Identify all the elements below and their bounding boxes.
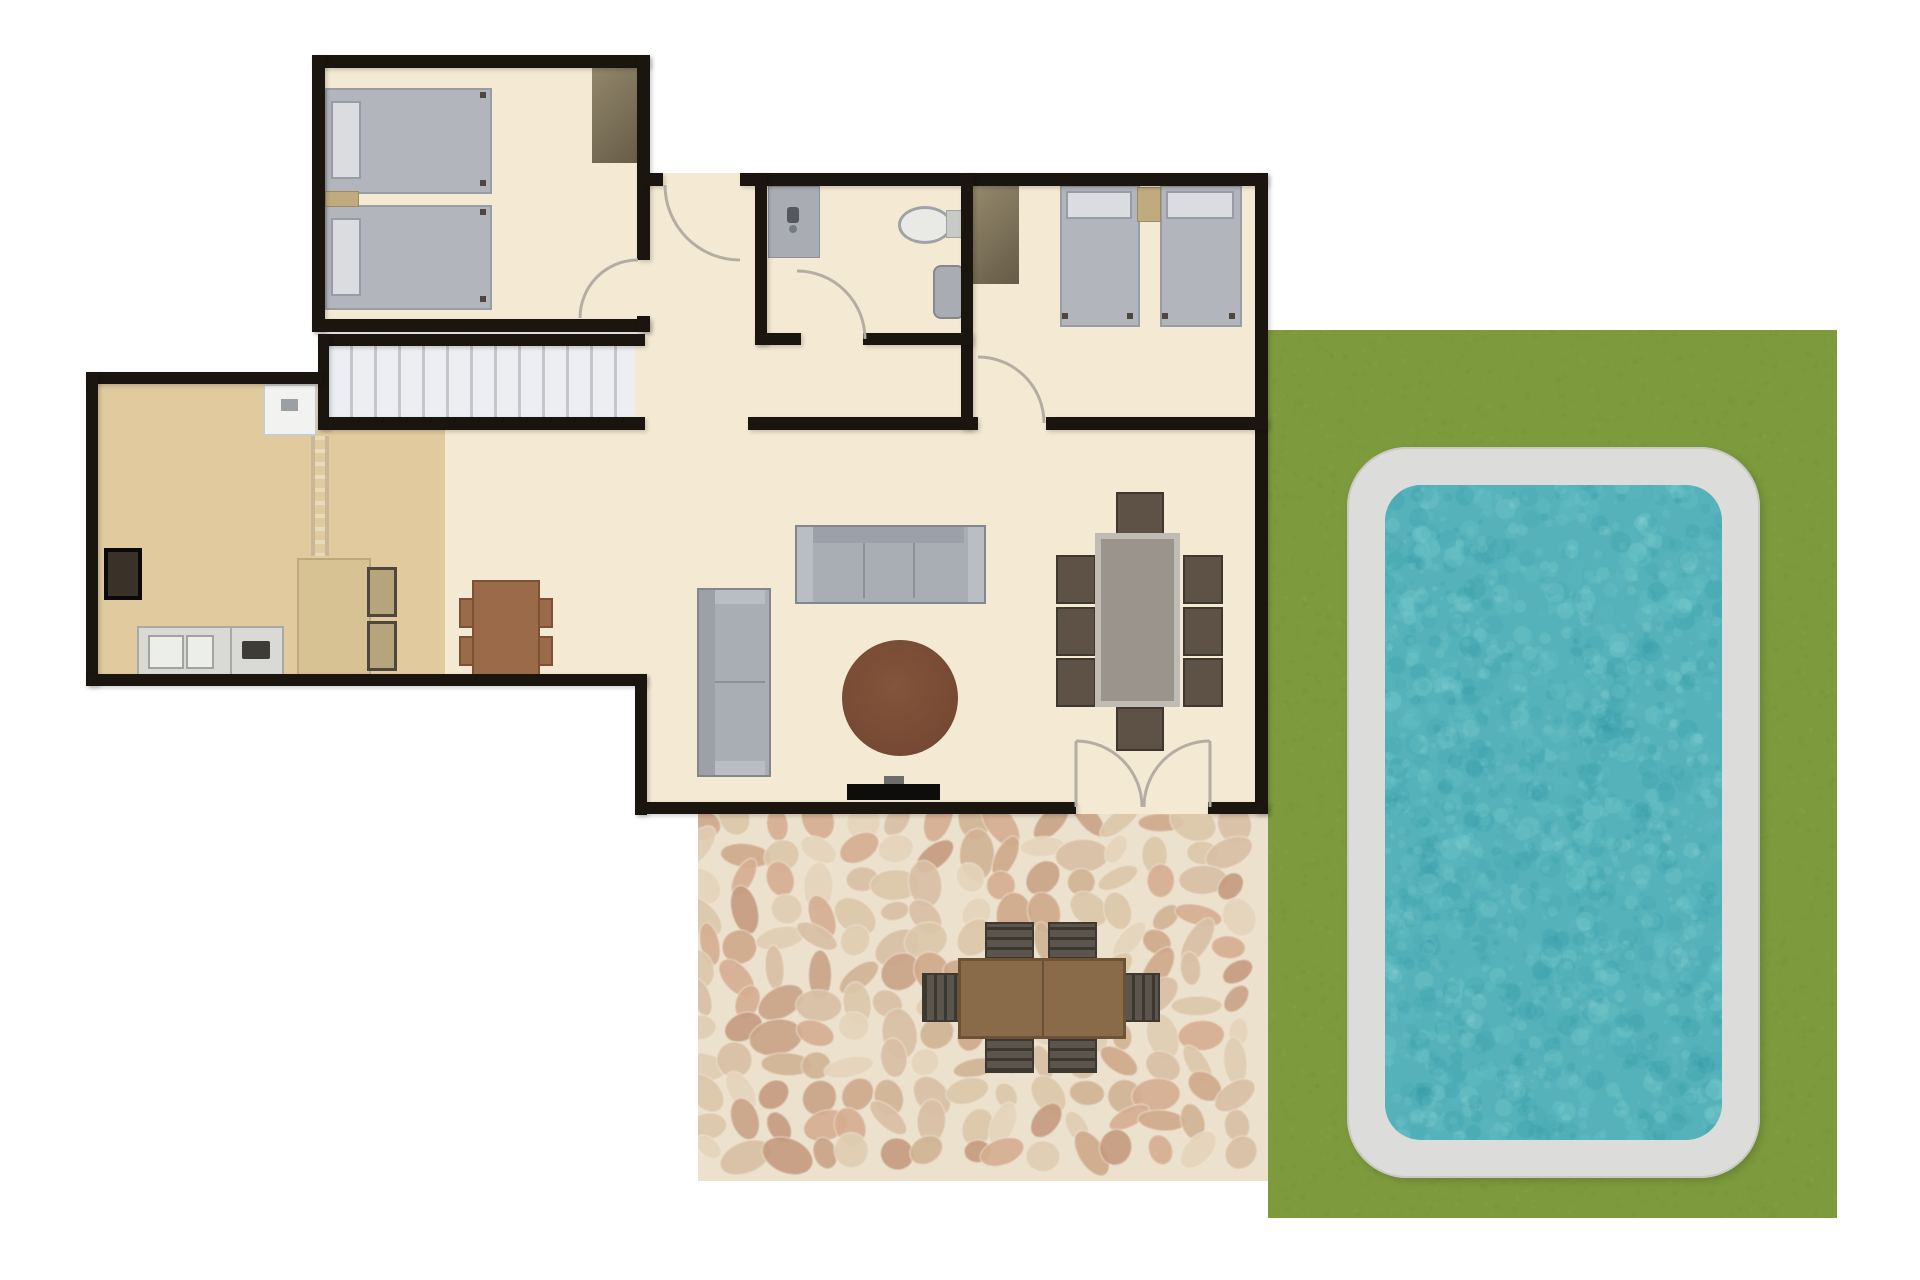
dining-chair (1056, 607, 1096, 656)
pool-water-texture (1385, 485, 1722, 1140)
sink-counter (137, 626, 234, 676)
table-seam (1042, 961, 1044, 1036)
wall (755, 173, 767, 345)
dining-chair (1116, 492, 1164, 537)
wall (86, 372, 98, 686)
wall (755, 333, 801, 345)
wall (863, 333, 973, 345)
wall (312, 55, 650, 68)
three-seat-sofa (795, 525, 986, 604)
two-seat-sofa (697, 588, 771, 777)
outdoor-chair (1048, 922, 1097, 962)
round-coffee-table (842, 640, 958, 756)
dining-chair (1183, 555, 1223, 604)
wall (1255, 173, 1268, 814)
dining-chair (1056, 658, 1096, 707)
refrigerator (263, 384, 317, 436)
wall (643, 173, 663, 186)
pillow (331, 218, 361, 296)
outdoor-chair (985, 1033, 1034, 1073)
wall (86, 674, 647, 686)
bar-stool (367, 621, 397, 671)
wall (86, 372, 322, 384)
wall (312, 319, 650, 332)
oven (104, 548, 142, 600)
pillow (1066, 191, 1132, 219)
wall (637, 316, 650, 332)
wall (312, 55, 325, 332)
sink-bowl (148, 635, 184, 669)
sofa-arm (968, 527, 984, 602)
cushion-divider (715, 681, 765, 683)
wardrobe-bedroom-2 (973, 186, 1019, 284)
dining-chair (1116, 707, 1164, 751)
dining-chair (1183, 607, 1223, 656)
bed-post (480, 296, 486, 302)
cooktop (230, 626, 284, 676)
sink-drainer (186, 635, 214, 669)
wardrobe-bedroom-1 (592, 62, 642, 163)
cushion-divider (863, 543, 865, 598)
sofa-arm (715, 590, 765, 604)
pillow (331, 101, 361, 179)
sofa-back (699, 590, 715, 775)
bar-stool (367, 567, 397, 617)
bed-post (1162, 313, 1168, 319)
cushion-divider (913, 543, 915, 598)
wall (635, 802, 1076, 814)
dining-chair (1056, 555, 1096, 604)
outdoor-chair (922, 973, 962, 1022)
wall (1208, 802, 1268, 814)
wall (748, 417, 978, 430)
staircase (329, 346, 635, 417)
outdoor-chair (985, 922, 1034, 962)
kitchen-island (297, 558, 371, 678)
outdoor-dining-table (958, 958, 1126, 1039)
sofa-arm (797, 527, 813, 602)
nightstand (325, 191, 359, 207)
bed-post (480, 209, 486, 215)
floor-plan (0, 0, 1920, 1280)
outdoor-chair (1120, 973, 1160, 1022)
sofa-back (813, 527, 964, 543)
toilet (898, 206, 952, 244)
wall (740, 173, 1268, 186)
nightstand (1137, 187, 1161, 222)
wall (635, 674, 647, 815)
drain-icon (789, 225, 797, 233)
sofa-arm (715, 761, 765, 775)
bed-post (1062, 313, 1068, 319)
burners-icon (242, 641, 270, 659)
dining-chair (1183, 658, 1223, 707)
bed-post (1127, 313, 1133, 319)
swimming-pool (1385, 485, 1722, 1140)
outdoor-chair (1048, 1033, 1097, 1073)
wall (1046, 417, 1268, 430)
loft-ladder (311, 436, 329, 556)
faucet-icon (787, 207, 799, 223)
bed-post (1229, 313, 1235, 319)
wall (961, 173, 973, 430)
dining-table (1095, 533, 1180, 707)
bed-post (480, 180, 486, 186)
bed-post (480, 92, 486, 98)
wall (318, 417, 645, 430)
tv (847, 784, 940, 800)
wall (637, 55, 650, 260)
kitchen-table (472, 580, 540, 681)
appliance-icon (281, 399, 298, 411)
bathroom-vanity-sink (768, 186, 820, 258)
toilet-tank (946, 210, 962, 238)
pillow (1166, 191, 1234, 219)
wall (318, 334, 645, 346)
